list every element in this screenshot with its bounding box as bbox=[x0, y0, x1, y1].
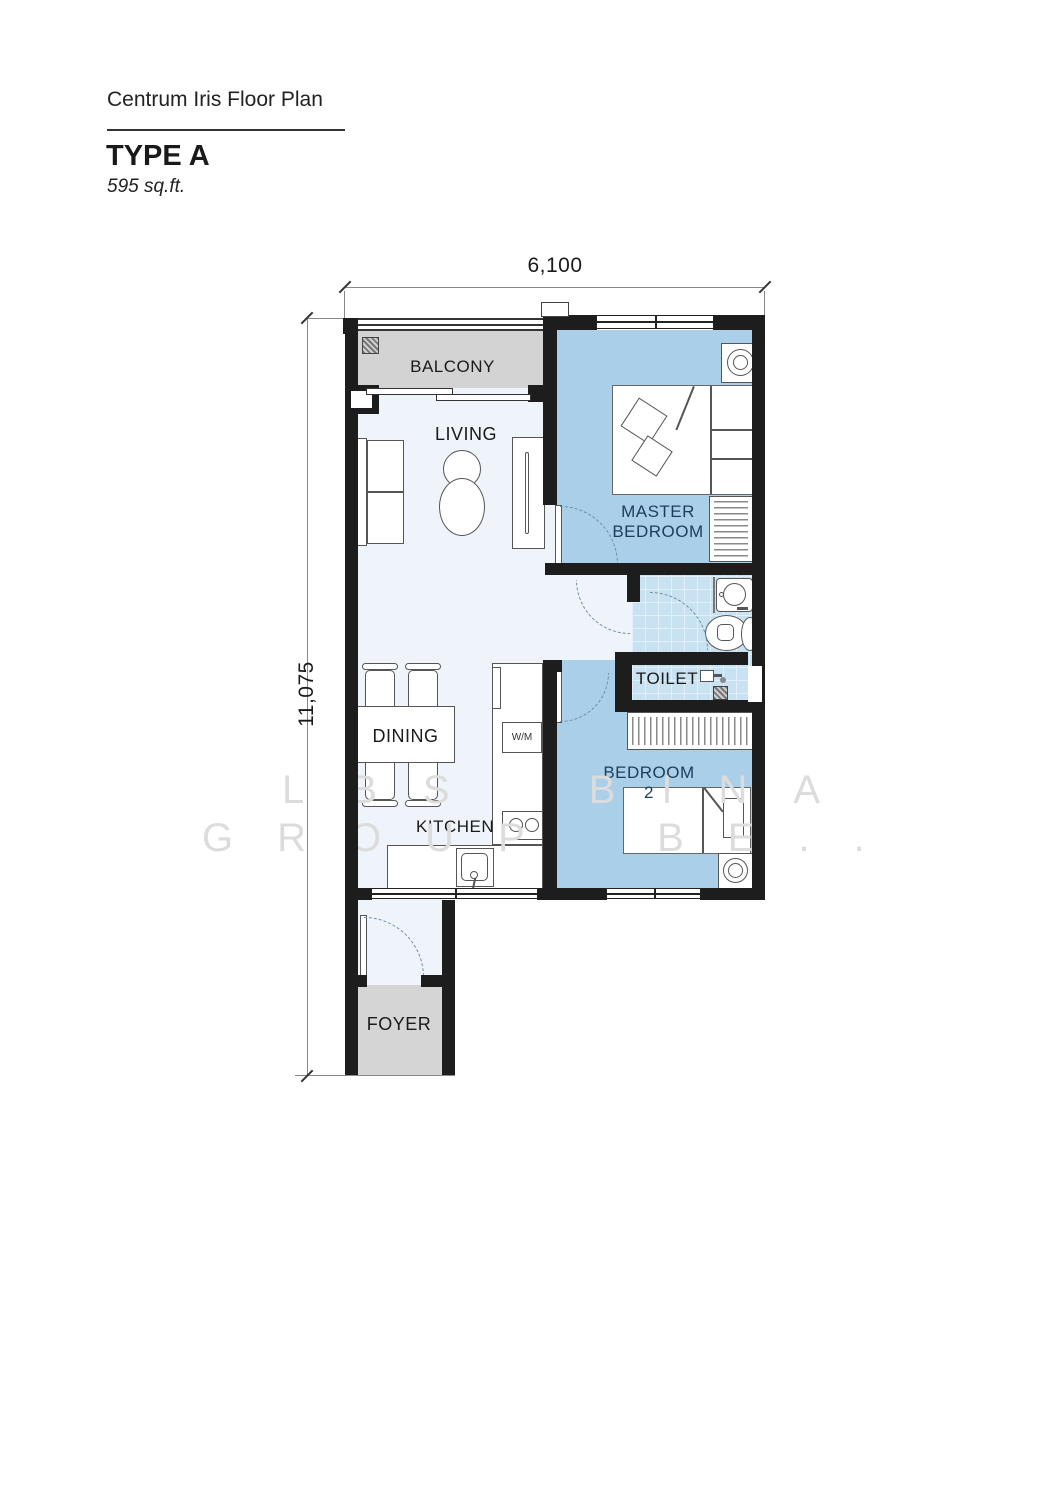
wall-entry-left-stub bbox=[345, 975, 367, 987]
bedroom2-ac-fan-inner bbox=[728, 863, 743, 878]
wardrobe-hanger-coil bbox=[714, 501, 748, 557]
room-label-master-bedroom: MASTER BEDROOM bbox=[608, 502, 708, 542]
floor-plan-canvas: Centrum Iris Floor Plan TYPE A 595 sq.ft… bbox=[0, 0, 1061, 1500]
bed2-pillow bbox=[723, 798, 744, 838]
bed-blanket-edge bbox=[710, 386, 712, 494]
shower-mixer bbox=[700, 670, 714, 682]
toilet-wall-niche bbox=[748, 666, 762, 702]
master-bedroom-window bbox=[596, 315, 714, 329]
washing-machine: W/M bbox=[502, 722, 542, 753]
wall-bathroom-left-stub bbox=[627, 575, 640, 602]
balcony-railing-line bbox=[358, 329, 543, 331]
unit-area: 595 sq.ft. bbox=[107, 176, 185, 198]
extension-line bbox=[764, 291, 765, 315]
room-label-kitchen: KITCHEN bbox=[416, 817, 494, 837]
bed-headboard-line bbox=[711, 429, 752, 431]
balcony-floor-drain bbox=[362, 337, 379, 354]
extension-line bbox=[307, 318, 345, 319]
unit-type-title: TYPE A bbox=[106, 140, 210, 173]
bathroom-tap-mark bbox=[737, 607, 748, 610]
wall-right bbox=[752, 315, 765, 900]
wardrobe-hanger-coil bbox=[632, 717, 749, 745]
dining-chair-seat bbox=[365, 758, 395, 800]
sofa-cushion bbox=[367, 440, 404, 492]
shower-head bbox=[720, 677, 726, 683]
bathroom-door-arc-inner bbox=[650, 592, 708, 650]
balcony-railing-line bbox=[358, 324, 543, 326]
wall-entry-right-stub bbox=[421, 975, 455, 987]
shower-screen bbox=[713, 577, 715, 613]
stove-burner bbox=[525, 818, 539, 832]
bathroom-basin-drain bbox=[719, 592, 724, 597]
washing-machine-label: W/M bbox=[503, 732, 541, 743]
dimension-width-label: 6,100 bbox=[495, 254, 615, 278]
wall-bedroom2-left bbox=[543, 660, 557, 900]
bathroom-basin-bowl bbox=[723, 583, 746, 606]
dining-chair-back bbox=[362, 663, 398, 670]
master-wardrobe bbox=[709, 496, 753, 562]
dining-chair-back bbox=[362, 800, 398, 807]
wall-bottom-bedroom2-right bbox=[700, 888, 765, 900]
bedroom2-door-arc bbox=[560, 673, 609, 722]
bedroom2-wardrobe bbox=[627, 712, 754, 750]
wall-master-bottom bbox=[545, 563, 765, 575]
bed-headboard-line bbox=[711, 458, 752, 460]
wall-left bbox=[345, 318, 358, 1075]
dining-chair-back bbox=[405, 663, 441, 670]
stove-burner bbox=[509, 818, 523, 832]
sofa-cushion bbox=[367, 492, 404, 544]
dining-chair-back bbox=[405, 800, 441, 807]
master-bedroom-label-line2: BEDROOM bbox=[608, 522, 708, 542]
room-label-toilet: TOILET bbox=[635, 669, 699, 689]
room-label-living: LIVING bbox=[432, 424, 500, 445]
bathroom-door-arc-vestibule bbox=[576, 580, 630, 634]
tv-unit bbox=[525, 452, 529, 534]
sliding-door-panel bbox=[436, 394, 531, 401]
wall-bottom-kitchen-left bbox=[345, 888, 372, 900]
room-label-balcony: BALCONY bbox=[390, 357, 515, 377]
balcony-railing-line bbox=[358, 318, 543, 320]
extension-line-foyer-bottom bbox=[295, 1075, 455, 1076]
master-bedroom-label-line1: MASTER bbox=[608, 502, 708, 522]
bedroom2-window bbox=[606, 888, 701, 899]
kitchen-tall-cabinet bbox=[492, 667, 501, 709]
column-outline bbox=[541, 302, 569, 317]
bed2-blanket-edge bbox=[702, 788, 704, 853]
toilet-bowl-inner bbox=[717, 624, 734, 641]
dining-chair-seat bbox=[408, 758, 438, 800]
title-underline bbox=[107, 129, 345, 131]
master-ac-fan-inner bbox=[733, 355, 748, 370]
wall-bathroom-toilet bbox=[627, 652, 748, 665]
room-label-bedroom2: BEDROOM 2 bbox=[598, 763, 700, 803]
dimension-line-top bbox=[345, 287, 765, 288]
room-label-foyer: FOYER bbox=[366, 1014, 432, 1035]
entrance-door-arc bbox=[364, 917, 424, 977]
extension-line bbox=[344, 291, 345, 319]
master-bed bbox=[612, 385, 753, 495]
kitchen-window bbox=[371, 888, 538, 899]
wall-living-master bbox=[543, 315, 557, 505]
page-title: Centrum Iris Floor Plan bbox=[107, 88, 323, 112]
wall-hallway-right bbox=[442, 900, 455, 1075]
coffee-table-large bbox=[439, 478, 485, 536]
toilet-floor-drain bbox=[713, 686, 728, 700]
wall-balcony-corner bbox=[343, 318, 358, 334]
wall-bedroom2-top bbox=[615, 700, 765, 712]
dimension-depth-label: 11,075 bbox=[295, 634, 319, 754]
wall-bottom-kitchen-right bbox=[537, 888, 557, 900]
room-label-dining: DINING bbox=[356, 726, 455, 747]
wall-bottom-bedroom2-left bbox=[557, 888, 607, 900]
